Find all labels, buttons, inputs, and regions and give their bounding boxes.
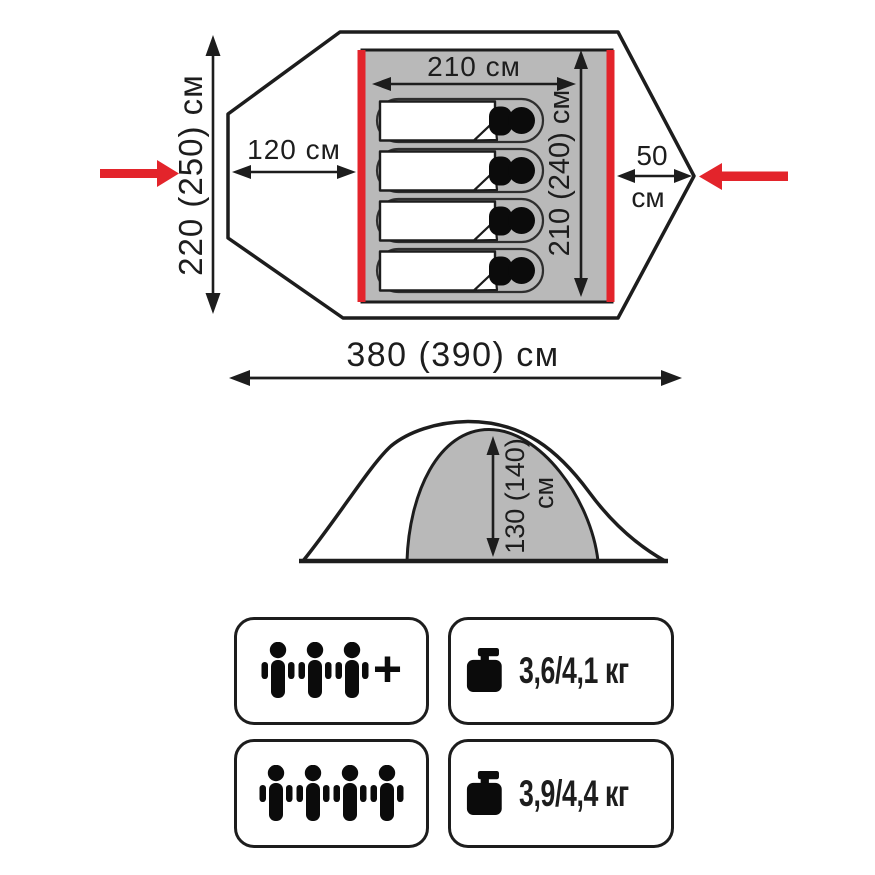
entrance-line-right <box>607 50 615 302</box>
tent-top-view: 210 см 210 (240) см 120 см 50 <box>100 32 788 386</box>
dim-total-length: 380 (390) см <box>229 336 682 386</box>
dim-left-vestibule-label: 120 см <box>247 134 341 165</box>
tent-diagram-svg: 210 см 210 (240) см 120 см 50 <box>0 0 875 600</box>
person-icon <box>333 765 367 823</box>
person-icon <box>259 765 293 823</box>
person-icon <box>335 642 369 700</box>
dim-height-unit: см <box>529 477 559 509</box>
weight-max-badge: 3,9/4,4 кг <box>448 739 674 848</box>
weight-icon <box>466 646 503 694</box>
dim-height-value: 130 (140) <box>500 438 530 554</box>
person-icon <box>298 642 332 700</box>
person-icon <box>261 642 295 700</box>
dim-total-width: 220 (250) см <box>172 35 221 314</box>
weight-primary-badge: 3,6/4,1 кг <box>448 617 674 725</box>
dim-inner-width-label: 210 см <box>427 51 521 82</box>
dim-inner-depth-label: 210 (240) см <box>544 90 576 257</box>
plus-sign: + <box>373 644 402 694</box>
weight-primary-value: 3,6/4,1 кг <box>519 650 629 692</box>
dim-left-vestibule: 120 см <box>232 134 356 179</box>
tent-spec-diagram: 210 см 210 (240) см 120 см 50 <box>0 0 875 875</box>
tent-side-view: 130 (140) см <box>299 422 668 562</box>
dim-total-length-label: 380 (390) см <box>346 336 559 374</box>
dim-total-width-label: 220 (250) см <box>172 74 209 276</box>
person-icon <box>370 765 404 823</box>
weight-max-value: 3,9/4,4 кг <box>519 773 629 815</box>
person-icon <box>296 765 330 823</box>
capacity-max-badge <box>234 739 429 848</box>
person-icon-row <box>261 642 369 700</box>
person-icon-row <box>259 765 404 823</box>
weight-icon <box>466 769 503 817</box>
red-entrance-arrow-icon <box>699 163 788 190</box>
dim-right-vestibule-unit: см <box>631 182 664 213</box>
capacity-primary-badge: + <box>234 617 429 725</box>
dim-right-vestibule-value: 50 <box>636 140 667 171</box>
red-entrance-arrow-icon <box>100 160 179 187</box>
entrance-line-left <box>358 50 366 302</box>
